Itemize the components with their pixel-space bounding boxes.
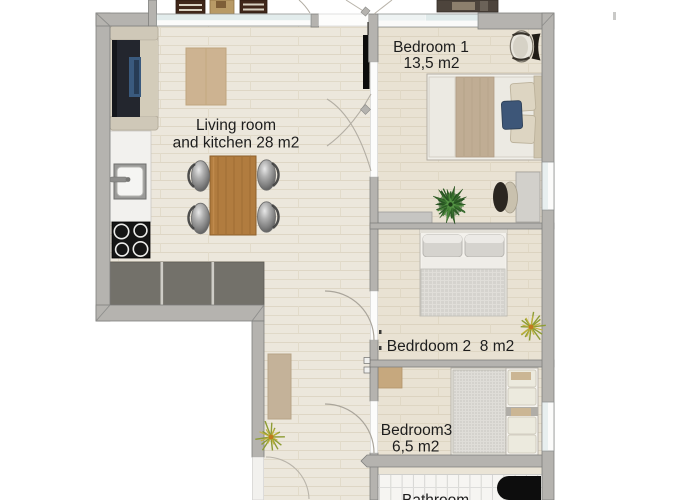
svg-text:6,5 m2: 6,5 m2 bbox=[392, 439, 439, 456]
svg-text:Living room: Living room bbox=[196, 117, 276, 134]
svg-text:Bedroom 1: Bedroom 1 bbox=[393, 39, 469, 56]
svg-text:13,5 m2: 13,5 m2 bbox=[403, 55, 459, 72]
svg-text:and kitchen 28 m2: and kitchen 28 m2 bbox=[173, 135, 300, 152]
svg-text:Bathroom: Bathroom bbox=[402, 492, 469, 500]
svg-text:Bedrdoom 2 8 m2: Bedrdoom 2 8 m2 bbox=[387, 338, 515, 355]
svg-text:Bedroom3: Bedroom3 bbox=[381, 422, 453, 439]
